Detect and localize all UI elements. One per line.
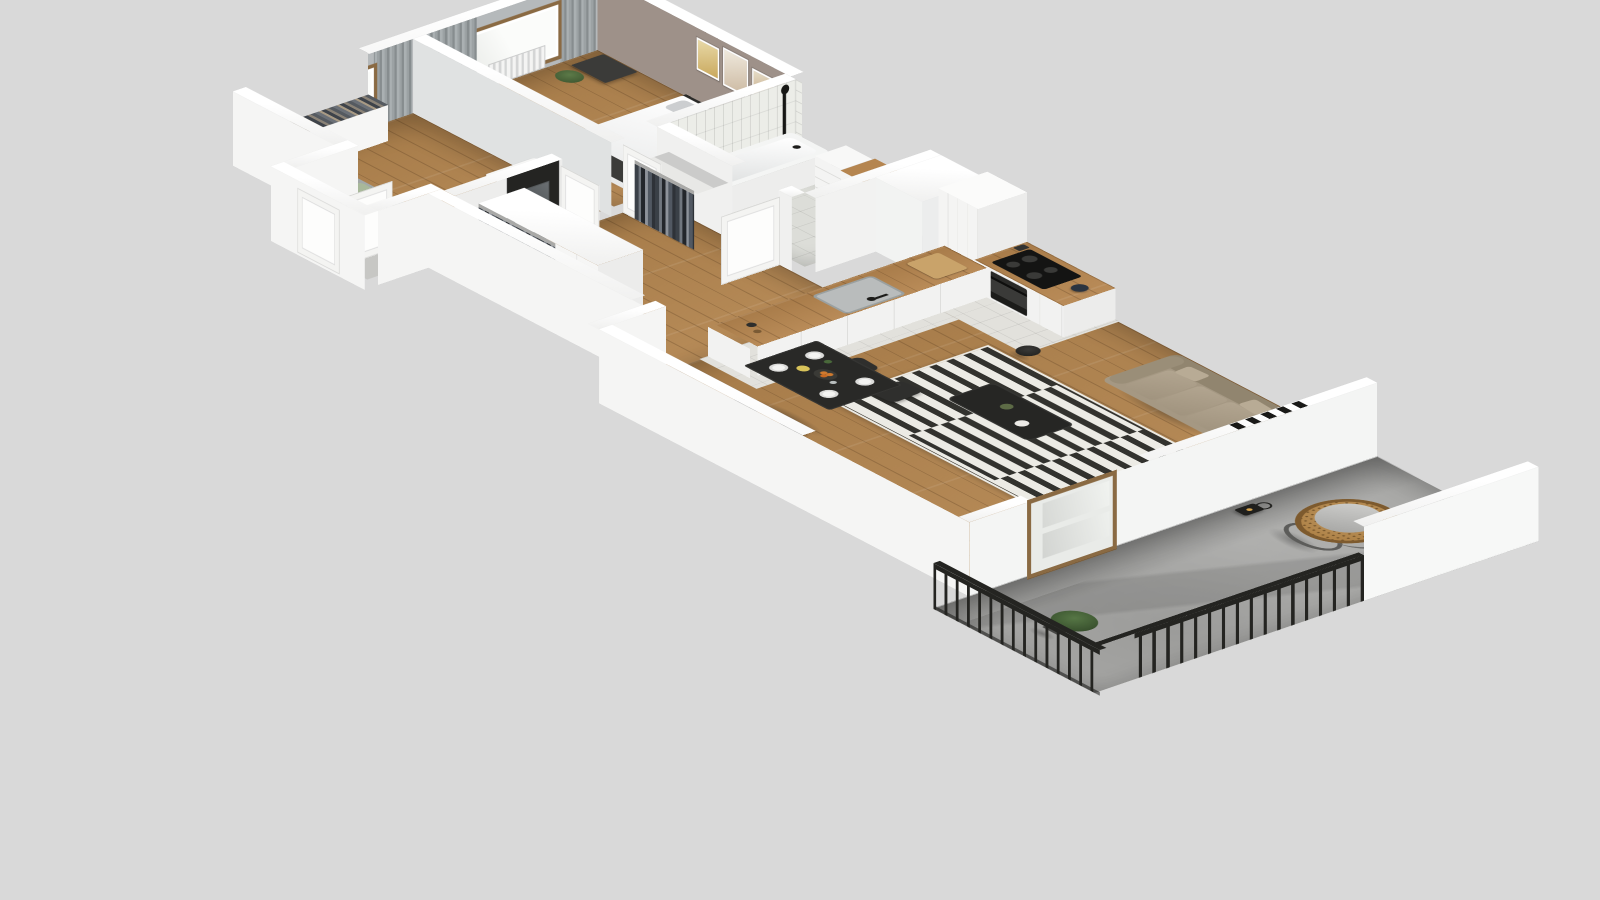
bottle	[751, 329, 763, 334]
lantern-candle-glow	[1245, 508, 1254, 512]
floorplan-3d	[94, 40, 1562, 715]
table-bowl	[1012, 419, 1033, 428]
bottle	[744, 322, 759, 328]
bedroom-print-1	[697, 37, 719, 81]
sconce-icon	[816, 99, 821, 117]
sconce-icon	[845, 114, 850, 132]
fruit-bowl	[809, 367, 843, 382]
plate	[851, 376, 878, 387]
kettle	[1067, 283, 1092, 294]
bottle-green	[822, 359, 834, 364]
plate	[765, 362, 792, 373]
faucet-arm	[872, 294, 889, 300]
plate	[816, 388, 843, 399]
cutting-board	[906, 252, 969, 279]
table-vase	[997, 403, 1016, 411]
front-door	[297, 188, 339, 275]
scene-background	[0, 0, 1600, 900]
yellow-bowl	[794, 364, 813, 372]
bath-south-wall-b	[779, 190, 792, 271]
glass	[828, 380, 838, 384]
plate	[801, 350, 828, 361]
